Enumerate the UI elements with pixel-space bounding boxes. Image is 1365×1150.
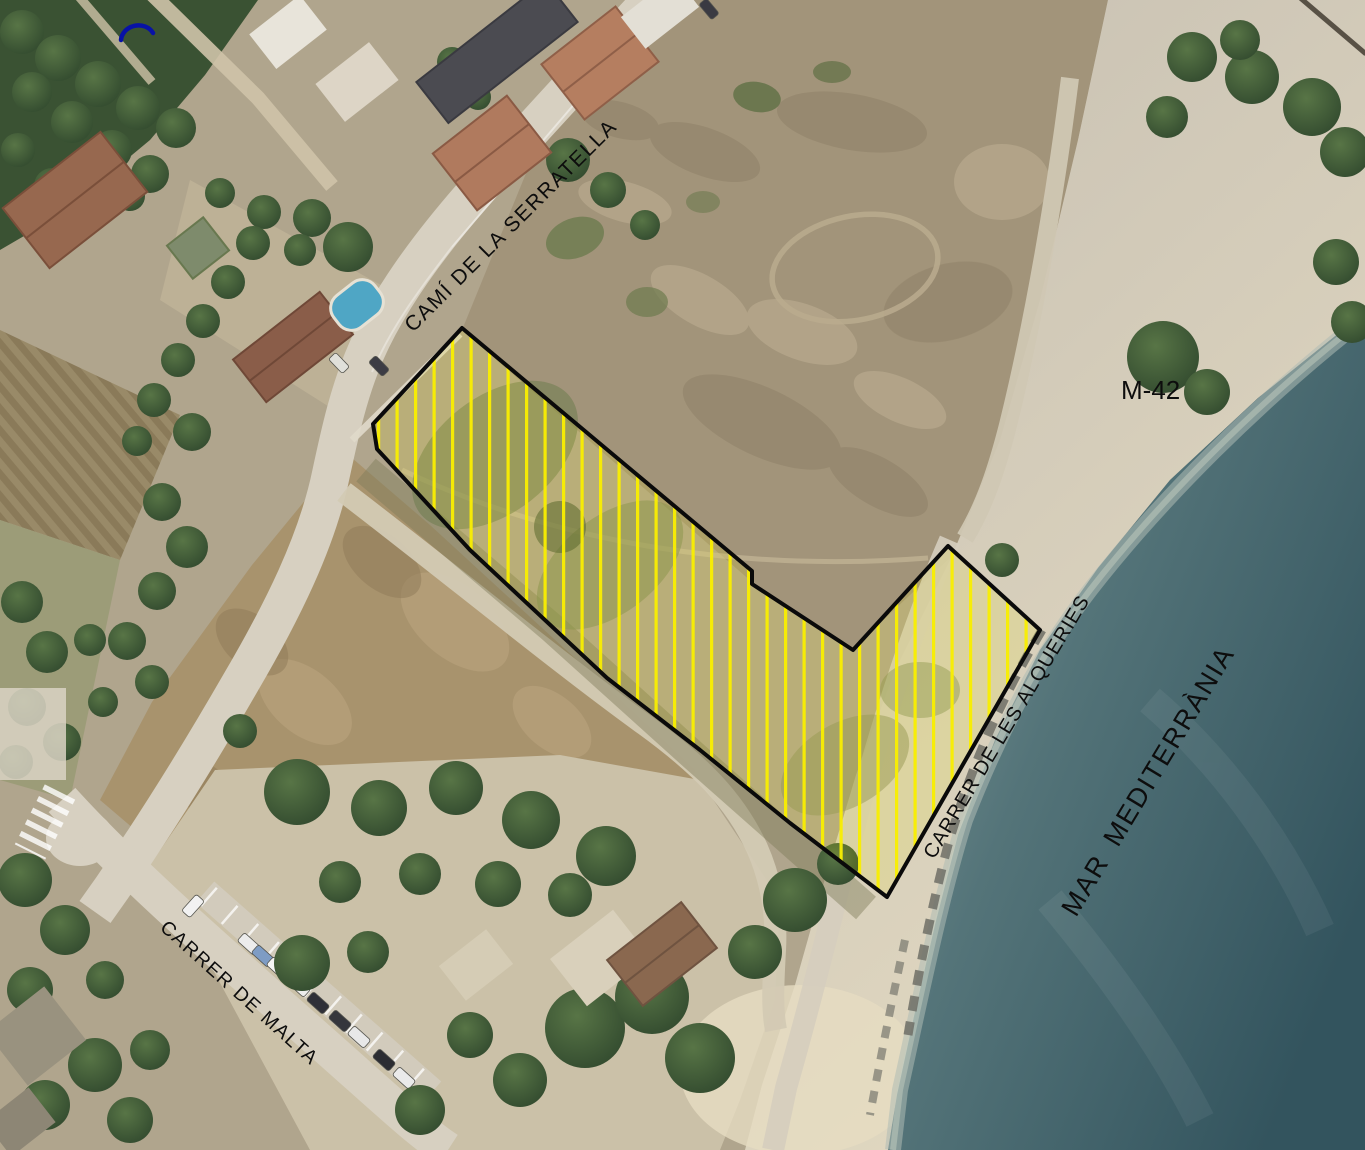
aerial-map: CAMÍ DE LA SERRATELLA M-42 CARRER DE LES…	[0, 0, 1365, 1150]
satellite-basemap: CAMÍ DE LA SERRATELLA M-42 CARRER DE LES…	[0, 0, 1365, 1150]
road-label-m42: M-42	[1121, 375, 1180, 405]
